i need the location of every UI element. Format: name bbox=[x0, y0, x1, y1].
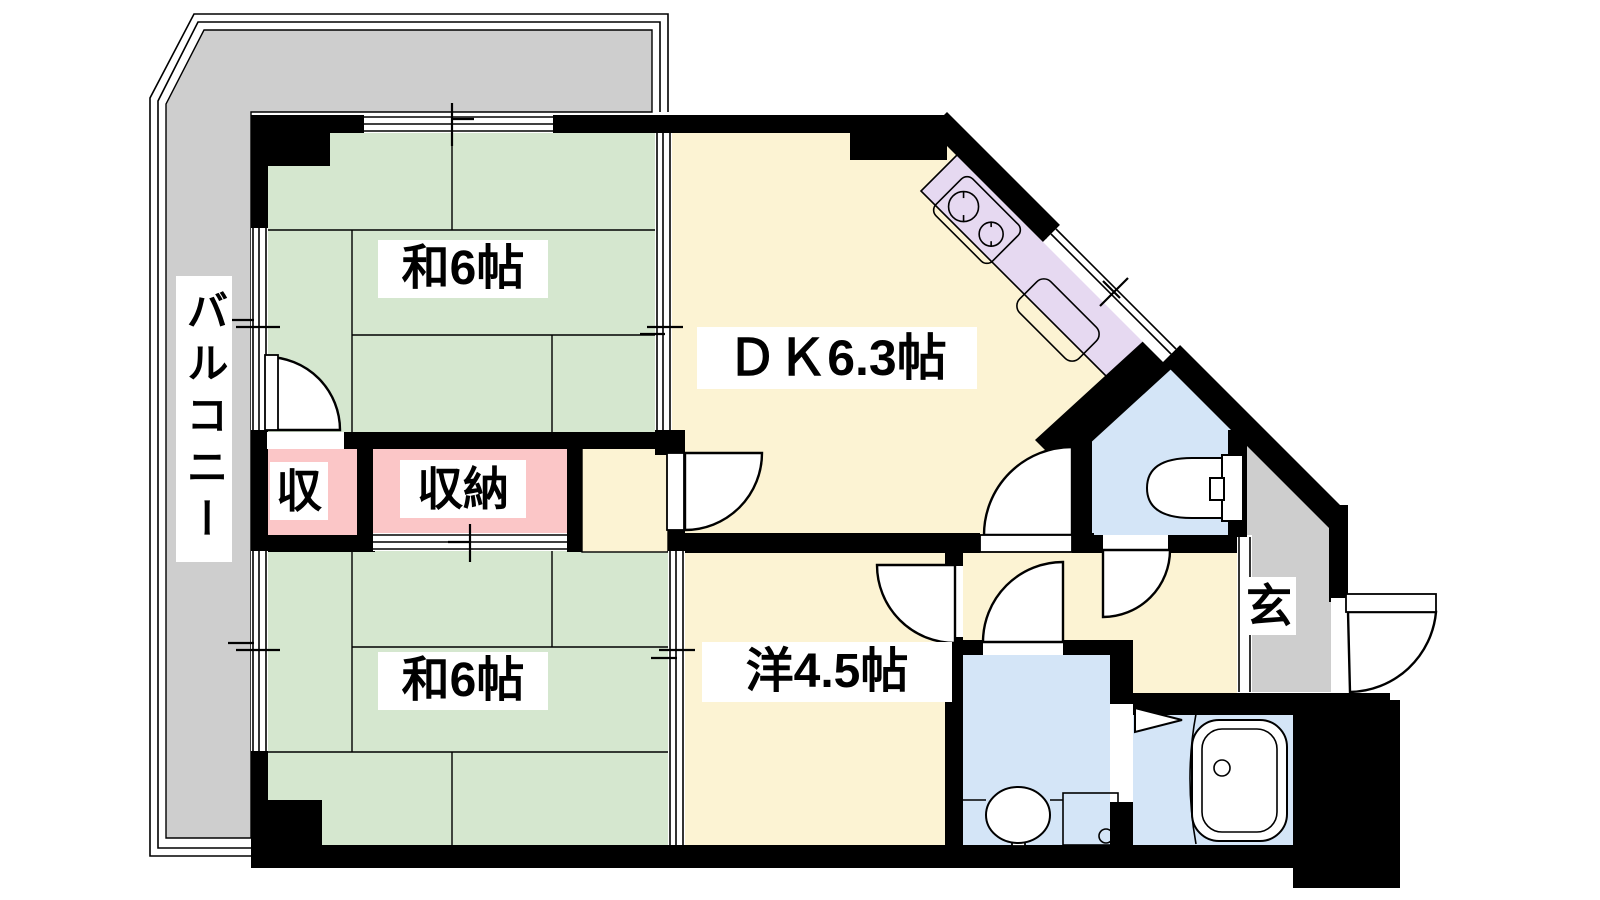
entrance-label: 玄 bbox=[1242, 577, 1296, 635]
closet-small-label: 収 bbox=[270, 462, 328, 520]
closet-large-label: 収納 bbox=[400, 460, 526, 518]
japanese-room-bottom-label: 和6帖 bbox=[378, 652, 548, 710]
japanese-room-top-label: 和6帖 bbox=[378, 240, 548, 298]
floorplan-canvas: バルコニー 和6帖 ＤＫ6.3帖 和6帖 洋4.5帖 収 収納 玄 bbox=[0, 0, 1600, 900]
balcony-label: バルコニー bbox=[176, 276, 232, 562]
dk-label: ＤＫ6.3帖 bbox=[697, 327, 977, 389]
hall-strip-floor bbox=[582, 447, 668, 552]
toilet-icon bbox=[1147, 455, 1243, 521]
bathtub-icon bbox=[1190, 714, 1287, 844]
floorplan-drawing bbox=[0, 0, 1600, 900]
western-room-label: 洋4.5帖 bbox=[702, 642, 952, 702]
entrance-door-icon bbox=[1331, 594, 1436, 692]
